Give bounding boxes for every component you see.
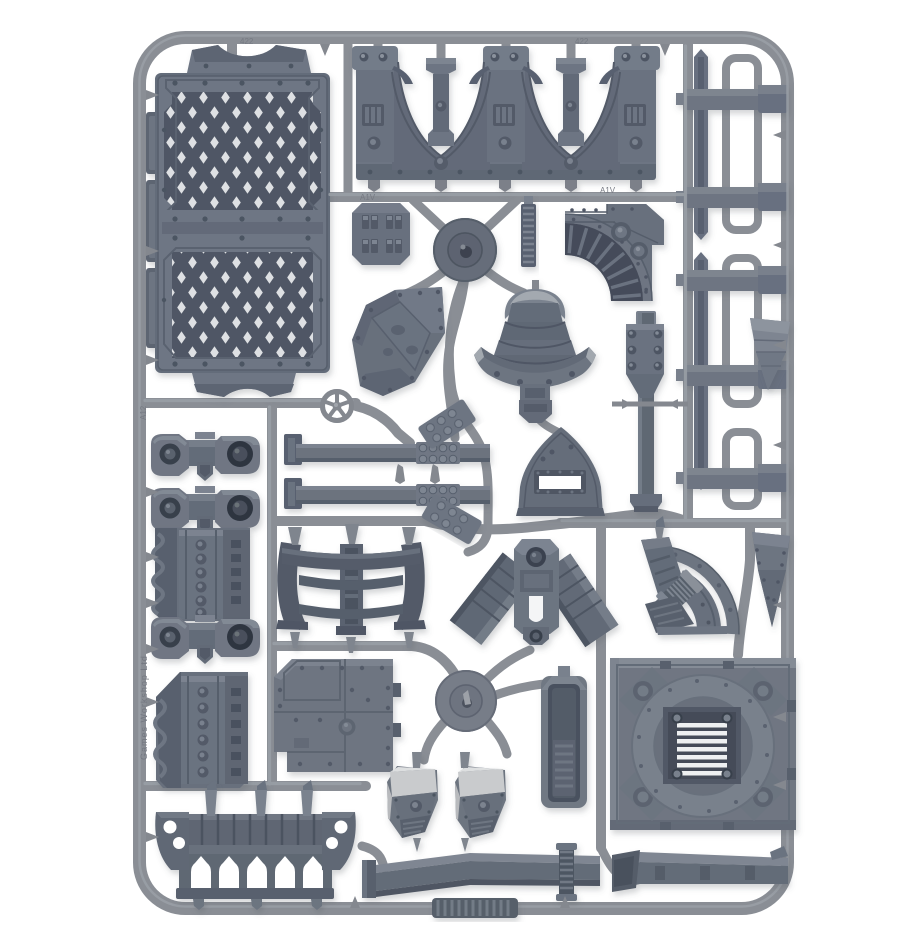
svg-text:A12: A12 (139, 405, 148, 420)
svg-text:A1V: A1V (600, 186, 616, 195)
svg-text:422: 422 (575, 37, 589, 46)
svg-text:Games Workshop Ltd: Games Workshop Ltd (139, 655, 149, 760)
svg-text:422: 422 (240, 37, 254, 46)
svg-text:A1V: A1V (360, 193, 376, 202)
